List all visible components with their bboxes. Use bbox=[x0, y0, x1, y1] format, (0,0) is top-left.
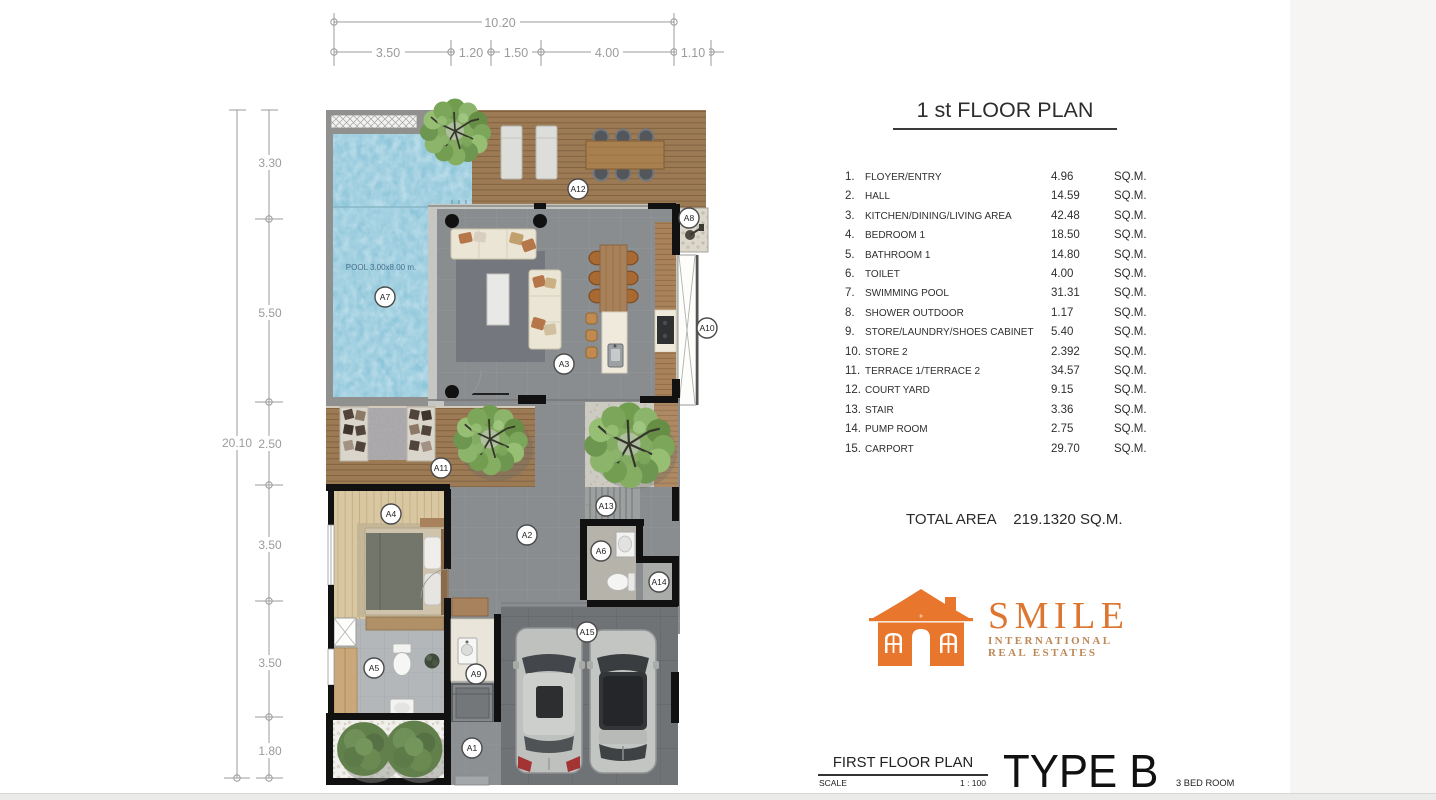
svg-text:1.80: 1.80 bbox=[258, 744, 282, 758]
svg-text:A4: A4 bbox=[386, 509, 397, 519]
svg-text:4.00: 4.00 bbox=[595, 46, 619, 60]
svg-text:3.50: 3.50 bbox=[376, 46, 400, 60]
svg-text:A7: A7 bbox=[380, 292, 391, 302]
svg-text:A15: A15 bbox=[579, 627, 594, 637]
svg-text:UP: UP bbox=[563, 501, 576, 511]
svg-text:20.10: 20.10 bbox=[222, 436, 252, 450]
svg-text:10.20: 10.20 bbox=[484, 16, 515, 30]
svg-text:A2: A2 bbox=[522, 530, 533, 540]
svg-text:A5: A5 bbox=[369, 663, 380, 673]
svg-text:A9: A9 bbox=[471, 669, 482, 679]
svg-text:3.50: 3.50 bbox=[258, 656, 282, 670]
svg-text:A8: A8 bbox=[684, 213, 695, 223]
svg-text:1.20: 1.20 bbox=[459, 46, 483, 60]
svg-text:A6: A6 bbox=[596, 546, 607, 556]
svg-text:1.50: 1.50 bbox=[504, 46, 528, 60]
svg-text:2.50: 2.50 bbox=[258, 437, 282, 451]
svg-text:3.30: 3.30 bbox=[258, 156, 282, 170]
svg-text:A13: A13 bbox=[598, 501, 613, 511]
svg-text:A3: A3 bbox=[559, 359, 570, 369]
svg-text:POOL 3.00x8.00 m.: POOL 3.00x8.00 m. bbox=[346, 263, 416, 272]
svg-text:A14: A14 bbox=[651, 577, 666, 587]
svg-text:A10: A10 bbox=[699, 323, 714, 333]
svg-text:1.10: 1.10 bbox=[681, 46, 705, 60]
svg-text:5.50: 5.50 bbox=[258, 306, 282, 320]
svg-text:A12: A12 bbox=[570, 184, 585, 194]
svg-text:A11: A11 bbox=[434, 463, 449, 473]
svg-text:3.50: 3.50 bbox=[258, 538, 282, 552]
svg-text:A1: A1 bbox=[467, 743, 478, 753]
